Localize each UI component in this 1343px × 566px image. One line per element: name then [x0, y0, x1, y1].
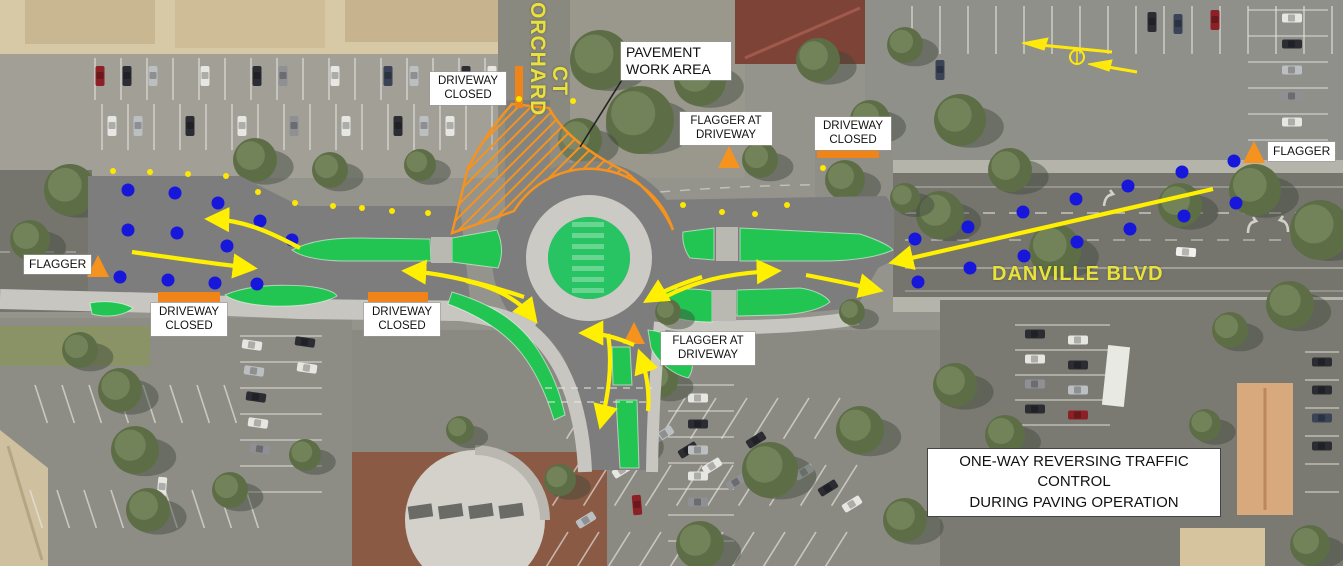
label-flagger-east: FLAGGER	[1268, 142, 1335, 161]
label-one-way-note: ONE-WAY REVERSING TRAFFIC CONTROL DURING…	[927, 448, 1221, 517]
label-flagger-at-driveway-south: FLAGGER AT DRIVEWAY	[661, 332, 755, 365]
orchard-ct-road-label-line2: CT	[547, 66, 571, 96]
label-driveway-closed-southwest: DRIVEWAY CLOSED	[151, 303, 227, 336]
orchard-ct-road-label-line1: ORCHARD	[525, 2, 549, 116]
label-driveway-closed-orchard: DRIVEWAY CLOSED	[430, 72, 506, 105]
roundabout	[537, 206, 641, 310]
label-driveway-closed-east: DRIVEWAY CLOSED	[815, 117, 891, 150]
label-flagger-west: FLAGGER	[24, 255, 91, 274]
label-driveway-closed-south: DRIVEWAY CLOSED	[364, 303, 440, 336]
traffic-control-plan: DRIVEWAY CLOSED PAVEMENT WORK AREA FLAGG…	[0, 0, 1343, 566]
danville-blvd-road-label: DANVILLE BLVD	[992, 263, 1164, 286]
label-flagger-at-driveway-north: FLAGGER AT DRIVEWAY	[680, 112, 772, 145]
label-pavement-work-area: PAVEMENT WORK AREA	[621, 42, 731, 80]
